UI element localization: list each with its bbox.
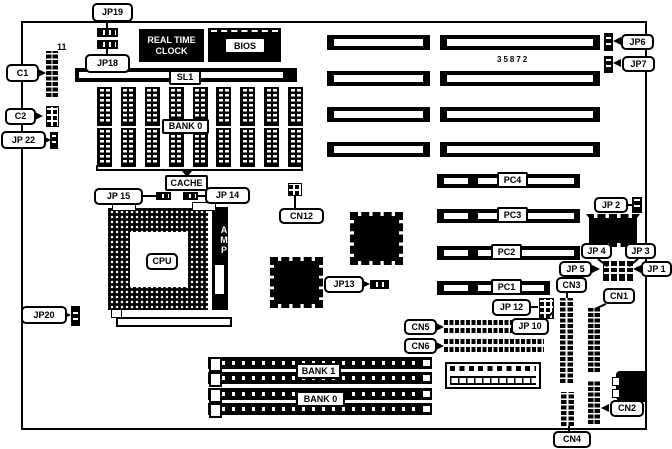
label-pc4-text: PC4 xyxy=(504,176,522,185)
label-cache-text: CACHE xyxy=(170,179,202,188)
isa-slot-1-right xyxy=(440,35,600,50)
dip-socket xyxy=(97,87,112,126)
label-jp3: JP 3 xyxy=(625,243,656,259)
jumper-cn12 xyxy=(288,183,302,196)
label-sl1-text: SL1 xyxy=(177,73,194,82)
label-c2-text: C2 xyxy=(15,112,27,121)
label-jp18-text: JP18 xyxy=(97,59,118,68)
label-jp12: JP 12 xyxy=(492,299,531,316)
isa-slot-1-left xyxy=(327,35,430,50)
jumper-jp19 xyxy=(97,28,118,37)
corner-note: 11 xyxy=(57,42,67,52)
label-jp14: JP 14 xyxy=(205,187,250,204)
jumper-jp20 xyxy=(71,306,80,326)
pointer-cn5 xyxy=(436,323,444,331)
dip-socket xyxy=(240,128,255,167)
bios-chip-label: BIOS xyxy=(225,38,265,53)
bios-text: BIOS xyxy=(234,41,256,51)
jumper-jp15 xyxy=(156,192,171,200)
label-cache-bank0: BANK 0 xyxy=(162,119,209,134)
pointer-jp19 xyxy=(106,22,108,28)
label-cn12-text: CN12 xyxy=(290,212,313,221)
label-jp1-text: JP 1 xyxy=(647,265,665,274)
label-pc4: PC4 xyxy=(497,172,528,188)
dip-socket xyxy=(264,87,279,126)
label-jp13: JP13 xyxy=(324,276,364,293)
label-jp4: JP 4 xyxy=(581,243,612,259)
isa-slot-3-right xyxy=(440,107,600,122)
dip-socket xyxy=(97,128,112,167)
label-pc2-text: PC2 xyxy=(498,248,516,257)
pointer-c2 xyxy=(35,112,43,120)
isa-slot-2-right xyxy=(440,71,600,86)
pointer-jp6 xyxy=(613,37,621,45)
pointer-jp7 xyxy=(613,59,621,67)
label-jp2: JP 2 xyxy=(594,197,628,213)
label-cn1-text: CN1 xyxy=(610,292,628,301)
label-cn5-text: CN5 xyxy=(411,323,429,332)
label-bank1: BANK 1 xyxy=(296,363,341,379)
label-jp15-text: JP 15 xyxy=(107,192,130,201)
label-cn6: CN6 xyxy=(404,338,437,354)
jumper-jp18 xyxy=(97,40,118,49)
label-c2: C2 xyxy=(5,108,36,125)
jumper-jp22 xyxy=(50,132,58,149)
label-pc1-text: PC1 xyxy=(498,283,516,292)
label-jp5: JP 5 xyxy=(559,261,592,277)
keyboard-pin xyxy=(612,389,620,398)
dip-socket xyxy=(288,87,303,126)
dip-socket xyxy=(121,128,136,167)
rtc-chip-text1: REAL TIME xyxy=(147,35,195,45)
label-cn5: CN5 xyxy=(404,319,437,335)
label-jp20-text: JP20 xyxy=(33,311,54,320)
isa-slot-4-right xyxy=(440,142,600,157)
simm-clip xyxy=(209,357,222,372)
label-cpu: CPU xyxy=(146,253,178,270)
cache-brace-tick-r xyxy=(301,165,303,171)
label-cn4-text: CN4 xyxy=(563,435,581,444)
pointer-cn3 xyxy=(566,293,568,298)
label-cache-bank0-text: BANK 0 xyxy=(169,122,203,131)
connector-cn6 xyxy=(444,339,544,352)
pointer-jp2 xyxy=(628,204,633,206)
pointer-cn2 xyxy=(601,404,609,412)
isa-slot-3-left xyxy=(327,107,430,122)
label-cn4: CN4 xyxy=(553,431,591,448)
label-jp14-text: JP 14 xyxy=(216,191,239,200)
jumper-jp13 xyxy=(370,280,389,289)
simm-clip xyxy=(209,372,222,387)
rtc-chip-text2: CLOCK xyxy=(156,46,188,56)
keyboard-pin xyxy=(612,377,620,386)
label-sl1: SL1 xyxy=(169,70,201,85)
dip-socket xyxy=(145,128,160,167)
pointer-jp15 xyxy=(143,195,156,197)
label-bank1-text: BANK 1 xyxy=(302,367,336,376)
label-jp6-text: JP6 xyxy=(629,38,645,47)
dip-socket xyxy=(145,87,160,126)
label-jp20: JP20 xyxy=(21,306,67,324)
label-jp10: JP 10 xyxy=(511,318,549,335)
label-cn3: CN3 xyxy=(556,277,587,293)
label-cn12: CN12 xyxy=(279,208,324,224)
label-c1-text: C1 xyxy=(17,69,29,78)
dip-socket xyxy=(216,128,231,167)
label-jp13-text: JP13 xyxy=(333,280,354,289)
pointer-jp5 xyxy=(592,265,600,273)
cpu-socket-foot xyxy=(111,309,122,318)
label-cn2-text: CN2 xyxy=(618,404,636,413)
jumper-jp2 xyxy=(632,197,642,213)
cache-brace-tick-l xyxy=(96,165,98,171)
connector-cn3 xyxy=(560,298,573,383)
pointer-cn6 xyxy=(436,342,444,350)
dip-socket xyxy=(216,87,231,126)
label-cpu-text: CPU xyxy=(152,257,171,266)
dip-socket xyxy=(288,128,303,167)
rtc-chip: REAL TIME CLOCK xyxy=(139,29,204,62)
label-jp15: JP 15 xyxy=(94,188,143,205)
label-jp7: JP7 xyxy=(622,56,655,72)
pointer-jp12 xyxy=(531,306,538,308)
label-pc3: PC3 xyxy=(497,207,528,223)
dip-socket xyxy=(264,128,279,167)
label-jp10-text: JP 10 xyxy=(518,322,541,331)
connector-cn4 xyxy=(561,392,574,426)
chipset-qfp-1 xyxy=(350,212,403,265)
isa-slot-4-left xyxy=(327,142,430,157)
label-jp22-text: JP 22 xyxy=(12,136,35,145)
label-jp1: JP 1 xyxy=(641,261,672,277)
label-jp3-text: JP 3 xyxy=(631,247,649,256)
label-cn3-text: CN3 xyxy=(562,281,580,290)
label-bank0: BANK 0 xyxy=(296,391,345,407)
label-jp19-text: JP19 xyxy=(102,8,123,17)
label-jp2-text: JP 2 xyxy=(602,201,620,210)
bios-socket-mark xyxy=(211,30,278,32)
connector-c1 xyxy=(46,51,58,97)
label-jp18: JP18 xyxy=(85,54,130,73)
cache-brace xyxy=(96,169,303,171)
label-jp7-text: JP7 xyxy=(630,60,646,69)
pointer-cn12 xyxy=(294,196,296,208)
chipset-qfp-2 xyxy=(270,257,323,308)
isa-slot-2-left xyxy=(327,71,430,86)
label-pc2: PC2 xyxy=(491,244,522,260)
label-cache: CACHE xyxy=(165,175,208,191)
vrm-amp-text: AMP xyxy=(212,211,228,269)
label-pc1: PC1 xyxy=(491,279,522,295)
label-cn1: CN1 xyxy=(603,288,635,304)
jumper-jp7 xyxy=(604,56,613,73)
bios-chip: BIOS xyxy=(208,28,281,62)
dip-socket xyxy=(121,87,136,126)
connector-cn1 xyxy=(588,308,600,372)
dip-socket xyxy=(240,87,255,126)
label-cn2: CN2 xyxy=(610,400,644,417)
motherboard-diagram: JP19 JP18 11 C1 C2 JP 22 JP20 REAL TIME … xyxy=(0,0,672,449)
vrm-slot xyxy=(215,265,224,294)
vrm-amp-glyphs: AMP xyxy=(219,225,229,255)
jumper-jp6 xyxy=(604,33,613,51)
label-jp22: JP 22 xyxy=(1,131,46,149)
jumper-c2 xyxy=(46,106,59,127)
simm-clip xyxy=(209,403,222,418)
label-bank0-text: BANK 0 xyxy=(304,395,338,404)
label-jp5-text: JP 5 xyxy=(566,265,584,274)
label-c1: C1 xyxy=(6,64,39,82)
cpu-bottom-slot xyxy=(116,317,232,327)
label-cn6-text: CN6 xyxy=(411,342,429,351)
simm-clip xyxy=(209,388,222,403)
jumper-jp14 xyxy=(183,192,198,200)
connector-cn2 xyxy=(588,380,600,424)
label-pc3-text: PC3 xyxy=(504,211,522,220)
label-jp4-text: JP 4 xyxy=(587,247,605,256)
vrm-amp: AMP xyxy=(212,207,228,310)
label-jp12-text: JP 12 xyxy=(500,303,523,312)
label-jp19: JP19 xyxy=(92,3,133,22)
pointer-jp1 xyxy=(633,265,641,273)
power-connector xyxy=(445,362,541,389)
label-jp6: JP6 xyxy=(621,34,654,50)
board-ref-number: 35872 xyxy=(497,55,529,64)
keyboard-connector xyxy=(616,371,646,402)
pointer-c1 xyxy=(38,69,46,77)
